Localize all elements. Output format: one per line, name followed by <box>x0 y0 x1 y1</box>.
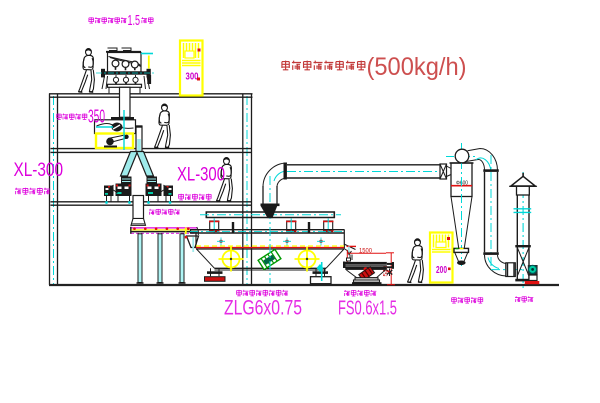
svg-text:ZLG6x0.75: ZLG6x0.75 <box>224 297 302 320</box>
svg-text:XL-300: XL-300 <box>14 160 64 181</box>
svg-text:350: 350 <box>88 107 105 127</box>
svg-text:(500kg/h): (500kg/h) <box>367 53 467 81</box>
svg-text:300: 300 <box>186 72 199 83</box>
svg-text:1.5: 1.5 <box>128 12 141 29</box>
svg-text:200: 200 <box>436 265 447 276</box>
svg-text:XL-300: XL-300 <box>177 165 225 186</box>
svg-text:1500: 1500 <box>359 248 372 255</box>
svg-text:FS0.6x1.5: FS0.6x1.5 <box>338 298 397 320</box>
